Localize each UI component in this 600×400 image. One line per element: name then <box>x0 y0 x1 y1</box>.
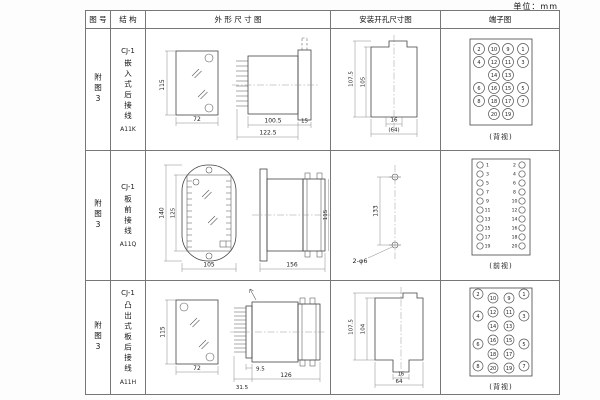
dim-front-width: 72 <box>193 365 201 372</box>
terminal-pin-number: 16 <box>489 337 495 343</box>
hatch-mark <box>202 190 218 225</box>
dim-base-depth: 31.5 <box>236 385 249 391</box>
terminal-pin-number: 9 <box>507 295 510 301</box>
dim-front-height: 115 <box>159 79 166 91</box>
terminal-pin-circle <box>518 180 524 186</box>
terminal-pin-number: 19 <box>504 112 510 118</box>
terminal-drawing-a11q: 1357911131517192468101214161820 (前视) <box>442 151 559 280</box>
terminal-pin-number: 17 <box>484 235 490 241</box>
terminal-cell-row1: 2109141211314136161558181772019 (背视) <box>441 29 559 151</box>
terminal-pin-number: 4 <box>476 313 479 319</box>
terminal-pin-number: 17 <box>505 351 511 357</box>
col-header-outline-label: 外 形 尺 寸 图 <box>214 14 261 25</box>
terminal-pin-number: 9 <box>506 47 509 53</box>
terminal-pin-grid: 2109141211314136161558181772019 <box>473 44 528 120</box>
model-row1: CJ-1 <box>121 47 135 55</box>
terminal-pin-circle <box>518 225 524 231</box>
terminal-pin-number: 12 <box>489 309 495 315</box>
terminal-pin-number: 18 <box>511 235 517 241</box>
terminal-pin-number: 6 <box>477 86 480 92</box>
terminal-pin-circle <box>476 198 482 204</box>
terminal-pin-number: 11 <box>484 208 490 214</box>
col-header-structure: 结 构 <box>111 11 146 29</box>
dim-outer-height: 107.5 <box>349 318 355 334</box>
terminal-pin-number: 8 <box>477 99 480 105</box>
terminal-pin-number: 2 <box>513 163 516 169</box>
terminal-pin-number: 20 <box>511 244 517 250</box>
terminal-pin-number: 5 <box>486 181 489 187</box>
structure-cell-row1: CJ-1 嵌入式后接线 A11K <box>111 29 146 151</box>
outline-cell-row1: 115 72 100.5 15 122.5 <box>146 29 331 151</box>
dim-inner-height: 105 <box>361 76 367 87</box>
col-header-fig-no: 图 号 <box>86 11 111 29</box>
terminal-pin-circle <box>518 162 524 168</box>
dim-front-height: 140 <box>159 207 166 219</box>
install-drawing-a11h: 107.5 104 16 64 <box>331 282 440 394</box>
fig-no-cell-row2: 附图3 <box>86 151 111 281</box>
terminal-pin-number: 7 <box>522 363 525 369</box>
terminal-pin-number: 5 <box>522 341 525 347</box>
dim-flange: 15 <box>301 119 308 125</box>
terminal-pin-number: 1 <box>522 291 525 297</box>
dim-front-width: 105 <box>203 262 215 269</box>
terminal-pin-circle <box>518 171 524 177</box>
outline-drawing-a11k: 115 72 100.5 15 122.5 <box>146 29 330 150</box>
dim-body-height: 115 <box>323 209 329 220</box>
code-row3: A11H <box>120 379 136 386</box>
terminal-pin-number: 17 <box>504 99 510 105</box>
fig-no-cell-row1: 附图3 <box>86 29 111 151</box>
terminal-pin-number: 13 <box>505 323 511 329</box>
terminal-pin-number: 1 <box>486 163 489 169</box>
col-header-outline: 外 形 尺 寸 图 <box>146 11 331 29</box>
mount-type-row2: 板前接线 <box>123 195 134 237</box>
terminal-pin-number: 20 <box>489 365 495 371</box>
view-label-row3: (背视) <box>489 382 512 391</box>
dim-slot-width: 16 <box>391 118 398 124</box>
terminal-pins-side <box>236 61 248 106</box>
terminal-pins-side <box>234 308 246 352</box>
terminal-pin-circle <box>476 162 482 168</box>
install-cell-row3: 107.5 104 16 64 <box>331 281 441 394</box>
model-row3: CJ-1 <box>121 289 135 297</box>
terminal-cell-row3: 2468101214161820911131517191357 (背视) <box>441 281 559 394</box>
terminal-drawing-a11h: 2468101214161820911131517191357 (背视) <box>442 282 559 394</box>
dim-inner-height: 104 <box>361 323 367 334</box>
spec-table: 图 号 结 构 外 形 尺 寸 图 安装开孔尺寸图 端子图 附图3 CJ-1 嵌… <box>85 10 560 395</box>
dim-body-depth: 100.5 <box>264 118 281 125</box>
structure-cell-row3: CJ-1 凸出式板后接线 A11H <box>111 281 146 394</box>
terminal-pin-number: 7 <box>486 190 489 196</box>
outline-cell-row2: 140 125 105 156 115 <box>146 151 331 281</box>
handle-dashed <box>302 38 307 50</box>
mount-type-row3: 凸出式板后接线 <box>123 301 134 375</box>
terminal-pin-number: 1 <box>521 47 524 53</box>
terminal-pin-circle <box>518 216 524 222</box>
dim-front-height: 115 <box>160 326 167 338</box>
install-cell-row1: 107.5 105 16 (64) <box>331 29 441 151</box>
col-header-structure-label: 结 构 <box>119 14 136 25</box>
terminal-pin-grid: 2468101214161820911131517191357 <box>473 289 529 373</box>
terminal-pin-circle <box>518 198 524 204</box>
terminal-pin-number: 20 <box>490 112 496 118</box>
terminal-pin-number: 19 <box>505 365 511 371</box>
dim-panel-width: (64) <box>388 128 399 134</box>
terminal-pin-circle <box>476 189 482 195</box>
code-row2: A11Q <box>120 241 136 248</box>
terminal-pin-number: 8 <box>513 190 516 196</box>
terminal-pin-circle <box>476 180 482 186</box>
terminal-pin-number: 11 <box>504 60 510 66</box>
terminal-pin-circle <box>476 243 482 249</box>
mount-type-row1: 嵌入式后接线 <box>123 59 134 122</box>
terminal-pin-number: 18 <box>489 351 495 357</box>
col-header-install-label: 安装开孔尺寸图 <box>359 14 412 25</box>
col-header-install: 安装开孔尺寸图 <box>331 11 441 29</box>
col-header-terminal-label: 端子图 <box>489 14 512 25</box>
hatch-mark <box>190 318 209 349</box>
terminal-pin-number: 7 <box>521 99 524 105</box>
terminal-pin-circle <box>518 234 524 240</box>
terminal-pin-number: 5 <box>521 86 524 92</box>
terminal-pin-number: 3 <box>486 172 489 178</box>
dim-panel-width: 64 <box>396 379 403 385</box>
terminal-pin-number: 16 <box>490 86 496 92</box>
dim-body-depth: 126 <box>280 371 292 378</box>
view-label-row2: (前视) <box>489 261 512 270</box>
terminal-pin-number: 9 <box>486 199 489 205</box>
fig-no-row1: 附图3 <box>93 73 104 106</box>
terminal-pin-number: 10 <box>490 47 496 53</box>
terminal-pin-number: 14 <box>489 323 495 329</box>
terminal-pin-number: 4 <box>477 60 480 66</box>
install-drawing-a11q: 133 2-φ6 <box>331 151 440 280</box>
terminal-pin-number: 12 <box>490 60 496 66</box>
terminal-cell-row2: 1357911131517192468101214161820 (前视) <box>441 151 559 281</box>
terminal-pin-number: 13 <box>504 73 510 79</box>
hole-diameter-label: 2-φ6 <box>353 257 368 265</box>
terminal-pin-number: 15 <box>505 337 511 343</box>
code-row1: A11K <box>120 126 136 133</box>
outline-drawing-a11q: 140 125 105 156 115 <box>146 151 330 280</box>
terminal-pin-number: 2 <box>476 291 479 297</box>
install-drawing-a11k: 107.5 105 16 (64) <box>331 29 440 150</box>
terminal-pin-number: 15 <box>484 226 490 232</box>
view-label-row1: (背视) <box>489 132 512 141</box>
lever-arrow <box>249 289 256 300</box>
terminal-pin-circle <box>518 243 524 249</box>
terminal-pin-number: 11 <box>505 309 511 315</box>
terminal-pin-number: 15 <box>504 86 510 92</box>
terminal-pin-number: 3 <box>521 60 524 66</box>
terminal-drawing-a11k: 2109141211314136161558181772019 (背视) <box>442 29 559 150</box>
terminal-pin-circle <box>476 171 482 177</box>
terminal-pin-number: 10 <box>489 295 495 301</box>
outline-cell-row3: 115 72 9.5 31.5 126 <box>146 281 331 394</box>
terminal-pin-number: 14 <box>490 73 496 79</box>
terminal-pin-number: 3 <box>522 313 525 319</box>
fig-no-cell-row3: 附图3 <box>86 281 111 394</box>
terminal-pin-number: 14 <box>511 217 517 223</box>
col-header-terminal: 端子图 <box>441 11 559 29</box>
outline-drawing-a11h: 115 72 9.5 31.5 126 <box>146 282 330 394</box>
model-row2: CJ-1 <box>121 183 135 191</box>
terminal-pin-number: 6 <box>476 341 479 347</box>
terminal-ticks-right <box>226 181 231 247</box>
dim-front-width: 72 <box>193 116 201 123</box>
dim-hole-spacing: 133 <box>373 205 380 217</box>
terminal-pin-number: 16 <box>511 226 517 232</box>
terminal-pin-circle <box>476 216 482 222</box>
dim-total-depth: 122.5 <box>259 130 276 137</box>
dim-terminal-depth: 9.5 <box>256 366 265 372</box>
terminal-pin-circle <box>518 189 524 195</box>
hatch-mark <box>192 69 208 99</box>
fig-no-row2: 附图3 <box>93 199 104 232</box>
terminal-pin-circle <box>476 207 482 213</box>
terminal-pin-grid: 1357911131517192468101214161820 <box>476 162 524 250</box>
fig-no-row3: 附图3 <box>93 321 104 354</box>
terminal-pin-circle <box>476 225 482 231</box>
structure-cell-row2: CJ-1 板前接线 A11Q <box>111 151 146 281</box>
terminal-ticks-left <box>187 181 192 247</box>
terminal-pin-number: 13 <box>484 217 490 223</box>
dim-outer-height: 107.5 <box>349 71 355 87</box>
terminal-pin-number: 8 <box>476 363 479 369</box>
dim-total-depth: 156 <box>286 262 298 269</box>
terminal-pin-circle <box>476 234 482 240</box>
terminal-pin-number: 18 <box>490 99 496 105</box>
terminal-pin-number: 2 <box>477 47 480 53</box>
col-header-fig-no-label: 图 号 <box>89 14 106 25</box>
terminal-pin-number: 4 <box>513 172 516 178</box>
terminal-pin-number: 19 <box>484 244 490 250</box>
terminal-pin-number: 12 <box>511 208 517 214</box>
dim-slot-width: 16 <box>398 371 404 377</box>
terminal-pin-circle <box>518 207 524 213</box>
terminal-pin-number: 6 <box>513 181 516 187</box>
terminal-pin-number: 10 <box>511 199 517 205</box>
install-cell-row2: 133 2-φ6 <box>331 151 441 281</box>
dim-inner-height: 125 <box>171 207 177 218</box>
